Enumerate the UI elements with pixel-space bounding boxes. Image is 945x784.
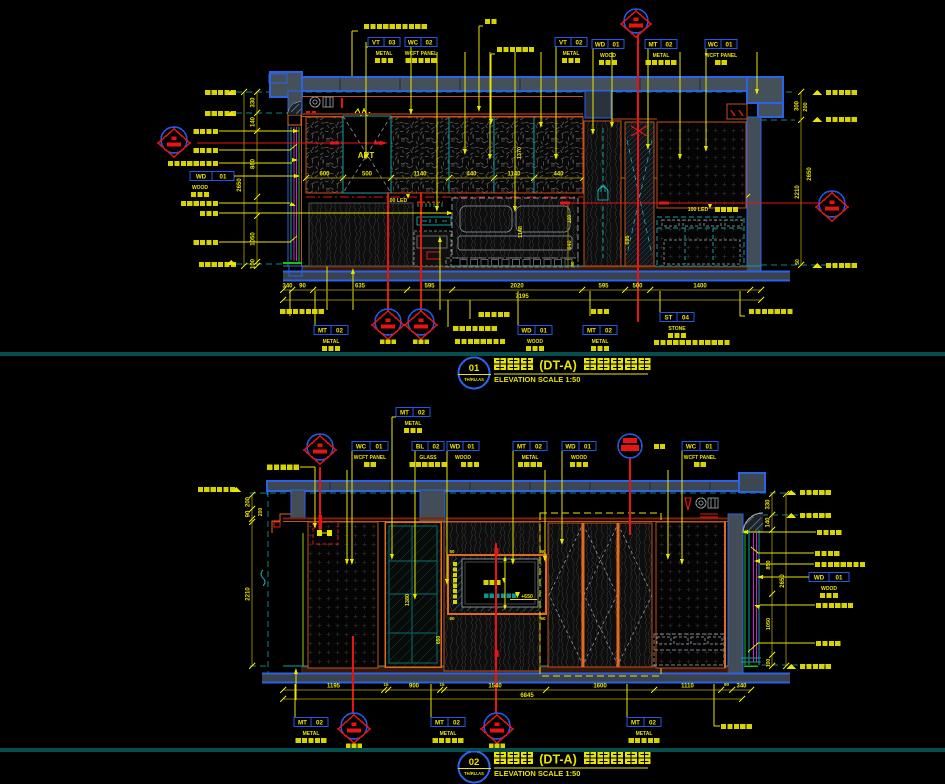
svg-text:WOOD: WOOD: [455, 455, 471, 461]
svg-text:WOOD: WOOD: [821, 586, 837, 592]
svg-text:02: 02: [453, 720, 460, 727]
svg-text:TH/RU.AS: TH/RU.AS: [464, 377, 484, 382]
svg-text:50: 50: [540, 616, 546, 621]
svg-text:440: 440: [553, 172, 564, 178]
svg-text:WD: WD: [565, 444, 576, 451]
svg-text:01: 01: [706, 444, 713, 451]
svg-text:WCFT PANEL: WCFT PANEL: [405, 51, 437, 57]
svg-text:15: 15: [383, 682, 389, 687]
svg-text:01: 01: [584, 444, 591, 451]
svg-text:WOOD: WOOD: [571, 455, 587, 461]
svg-text:WOOD: WOOD: [192, 185, 208, 191]
svg-text:1540: 1540: [488, 684, 502, 690]
svg-text:01: 01: [468, 444, 475, 451]
svg-text:01: 01: [220, 174, 227, 181]
svg-text:(DT-A): (DT-A): [539, 753, 577, 767]
svg-text:WC: WC: [408, 40, 419, 47]
svg-text:02: 02: [336, 328, 343, 335]
svg-text:WCFT PANEL: WCFT PANEL: [705, 53, 737, 59]
svg-text:ELEVATION SCALE 1:50: ELEVATION SCALE 1:50: [494, 375, 580, 384]
svg-text:02: 02: [316, 720, 323, 727]
svg-text:MT: MT: [517, 444, 526, 451]
svg-text:595: 595: [598, 284, 609, 290]
svg-text:02: 02: [576, 40, 583, 47]
svg-text:330: 330: [766, 499, 772, 510]
svg-text:50: 50: [449, 549, 455, 554]
svg-text:MT: MT: [318, 328, 327, 335]
svg-text:90: 90: [724, 682, 730, 687]
svg-text:1380: 1380: [405, 594, 411, 606]
svg-text:(DT-A): (DT-A): [539, 359, 577, 373]
svg-text:METAL: METAL: [303, 731, 320, 737]
svg-text:VT: VT: [559, 40, 567, 47]
svg-text:01: 01: [540, 328, 547, 335]
svg-text:440: 440: [466, 172, 477, 178]
svg-text:695: 695: [625, 235, 631, 244]
svg-text:TH/RU.AS: TH/RU.AS: [464, 771, 484, 776]
svg-text:02: 02: [666, 42, 673, 49]
svg-text:1148: 1148: [518, 226, 524, 238]
svg-text:2210: 2210: [246, 587, 252, 601]
svg-text:METAL: METAL: [522, 455, 539, 461]
svg-text:MT: MT: [298, 720, 307, 727]
svg-text:MT: MT: [435, 720, 444, 727]
svg-text:WD: WD: [450, 444, 461, 451]
svg-text:1050: 1050: [251, 232, 257, 246]
svg-text:2020: 2020: [510, 284, 524, 290]
svg-text:635: 635: [355, 284, 366, 290]
svg-text:300: 300: [795, 100, 801, 111]
svg-text:01: 01: [469, 363, 480, 374]
svg-text:MT: MT: [587, 328, 596, 335]
svg-text:WCFT PANEL: WCFT PANEL: [354, 455, 386, 461]
svg-text:1600: 1600: [593, 684, 607, 690]
svg-text:METAL: METAL: [563, 51, 580, 57]
svg-text:WD: WD: [595, 42, 606, 49]
svg-text:01: 01: [726, 42, 733, 49]
svg-text:MT: MT: [400, 410, 409, 417]
svg-text:METAL: METAL: [440, 731, 457, 737]
svg-text:2650: 2650: [780, 574, 786, 588]
svg-text:1370: 1370: [517, 147, 523, 159]
svg-text:340: 340: [736, 684, 747, 690]
svg-text:GLASS: GLASS: [419, 455, 437, 461]
svg-text:WCFT PANEL: WCFT PANEL: [684, 455, 716, 461]
svg-text:WOOD: WOOD: [527, 339, 543, 345]
svg-text:MT: MT: [631, 720, 640, 727]
svg-text:ELEVATION SCALE 1:50: ELEVATION SCALE 1:50: [494, 769, 580, 778]
svg-text:METAL: METAL: [636, 731, 653, 737]
svg-text:2650: 2650: [807, 167, 813, 181]
svg-text:90: 90: [246, 510, 252, 517]
svg-text:03: 03: [389, 40, 396, 47]
svg-text:200: 200: [258, 508, 264, 517]
svg-text:90: 90: [299, 284, 306, 290]
svg-text:01: 01: [376, 444, 383, 451]
svg-text:140: 140: [766, 517, 772, 528]
svg-text:METAL: METAL: [323, 339, 340, 345]
svg-text:WD: WD: [196, 174, 207, 181]
svg-text:330: 330: [251, 97, 257, 108]
svg-text:02: 02: [469, 757, 480, 768]
svg-text:50: 50: [795, 259, 801, 265]
svg-text:2650: 2650: [237, 178, 243, 192]
svg-text:200: 200: [803, 102, 809, 111]
svg-text:WC: WC: [686, 444, 697, 451]
svg-text:01: 01: [613, 42, 620, 49]
svg-text:BL: BL: [416, 444, 424, 451]
svg-text:01: 01: [836, 575, 843, 582]
svg-text:1140: 1140: [413, 172, 427, 178]
svg-text:WC: WC: [708, 42, 719, 49]
svg-text:WC: WC: [356, 444, 367, 451]
svg-text:02: 02: [426, 40, 433, 47]
svg-text:595: 595: [424, 284, 435, 290]
svg-text:100: 100: [766, 659, 772, 668]
svg-text:140: 140: [251, 116, 257, 127]
svg-text:METAL: METAL: [405, 421, 422, 427]
svg-text:340: 340: [282, 284, 293, 290]
svg-text:02: 02: [535, 444, 542, 451]
svg-text:850: 850: [766, 560, 772, 569]
svg-text:500: 500: [362, 172, 373, 178]
svg-text:500: 500: [632, 284, 643, 290]
svg-text:STONE: STONE: [668, 326, 686, 332]
svg-text:04: 04: [682, 315, 689, 322]
svg-text:15: 15: [439, 682, 445, 687]
svg-text:7195: 7195: [515, 294, 529, 300]
svg-text:50: 50: [570, 261, 575, 267]
svg-text:860: 860: [251, 158, 257, 169]
svg-text:WOOD: WOOD: [600, 53, 616, 59]
svg-text:100 LED: 100 LED: [688, 207, 709, 213]
svg-text:02: 02: [433, 444, 440, 451]
svg-text:100: 100: [251, 258, 257, 269]
svg-text:ST: ST: [665, 315, 673, 322]
svg-text:02: 02: [605, 328, 612, 335]
svg-text:50: 50: [449, 616, 455, 621]
svg-text:200: 200: [246, 496, 252, 507]
svg-text:METAL: METAL: [653, 53, 670, 59]
svg-text:1110: 1110: [681, 684, 694, 690]
svg-text:1140: 1140: [507, 172, 521, 178]
svg-text:6845: 6845: [520, 693, 534, 699]
svg-text:1195: 1195: [327, 684, 341, 690]
svg-text:VT: VT: [372, 40, 380, 47]
svg-text:650: 650: [436, 636, 442, 645]
svg-text:02: 02: [418, 410, 425, 417]
svg-text:900: 900: [409, 684, 420, 690]
svg-text:WD: WD: [521, 328, 532, 335]
svg-text:MT: MT: [649, 42, 658, 49]
svg-text:METAL: METAL: [376, 51, 393, 57]
svg-text:600: 600: [319, 172, 330, 178]
svg-text:WD: WD: [814, 575, 825, 582]
svg-text:METAL: METAL: [592, 339, 609, 345]
svg-text:02: 02: [649, 720, 656, 727]
svg-text:1400: 1400: [693, 284, 707, 290]
svg-text:2210: 2210: [795, 185, 801, 199]
svg-text:1050: 1050: [766, 618, 772, 630]
